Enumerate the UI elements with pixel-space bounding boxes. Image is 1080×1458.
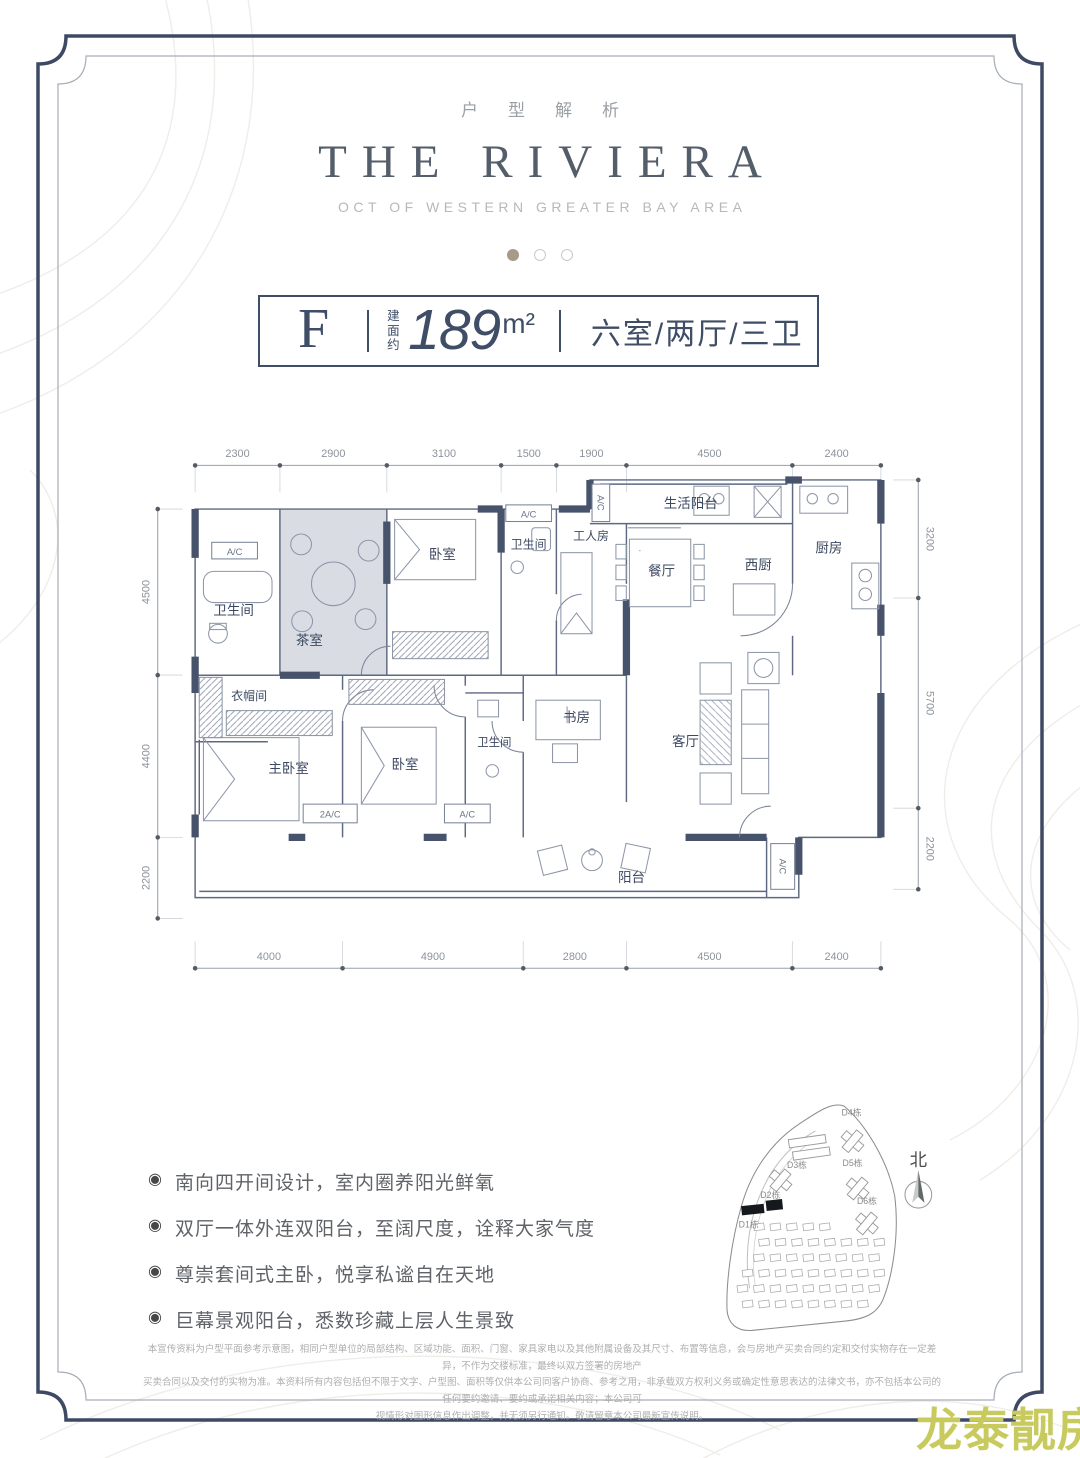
room-label-cloakroom: 衣帽间 (231, 688, 267, 703)
north-label: 北 (910, 1150, 928, 1170)
bullet-icon: ◉ (148, 1306, 163, 1329)
floorplan-svg: 2300 2900 3100 1500 1900 4500 2400 4000 … (112, 428, 964, 1051)
feature-list: ◉南向四开间设计，室内圈养阳光鲜氧 ◉双厅一体外连双阳台，至阔尺度，诠释大家气度… (148, 1168, 595, 1352)
bullet-icon: ◉ (148, 1214, 163, 1237)
page-subtitle: OCT OF WESTERN GREATER BAY AREA (0, 199, 1080, 215)
carousel-dot[interactable] (534, 249, 546, 261)
dim-bottom-3: 4500 (697, 951, 721, 963)
room-label-study: 书房 (563, 710, 590, 725)
site-label-d3: D3栋 (787, 1159, 807, 1170)
disclaimer-line: 买卖合同以及交付的实物为准。本资料所有内容包括但不限于文字、户型图、面积等仅供本… (142, 1375, 942, 1408)
room-label-bedroom-top: 卧室 (429, 546, 456, 562)
carousel-dots (0, 249, 1080, 261)
disclaimer-line: 视情形对图形信息作出调整，并无须另行通知。敬请留意本公司最新宣传说明。 (142, 1409, 942, 1426)
carousel-dot[interactable] (561, 249, 573, 261)
feature-text: 双厅一体外连双阳台，至阔尺度，诠释大家气度 (175, 1214, 595, 1241)
room-label-master: 主卧室 (268, 760, 309, 776)
area-label: 建面约 (387, 309, 402, 352)
dim-top-0: 2300 (225, 448, 249, 460)
dim-left-1: 4400 (140, 744, 152, 768)
dim-top-2: 3100 (432, 448, 456, 460)
room-label-living: 客厅 (672, 733, 699, 749)
unit-type-letter: F (298, 297, 329, 361)
dim-top-4: 1900 (579, 448, 603, 460)
ac-label: A/C (521, 509, 537, 519)
feature-text: 南向四开间设计，室内圈养阳光鲜氧 (175, 1168, 495, 1195)
dim-right-1: 5700 (924, 691, 936, 715)
watermark: 龙泰靓房 (916, 1394, 1080, 1458)
ac-label: A/C (460, 810, 476, 820)
room-label-bath2: 卫生间 (477, 735, 511, 749)
ac-label: A/C (596, 495, 606, 511)
divider (559, 310, 561, 352)
room-label-laundry: 生活阳台 (664, 496, 718, 511)
disclaimer-line: 本宣传资料为户型平面参考示意图，相同户型单位的局部结构、区域功能、面积、门窗、家… (142, 1342, 942, 1375)
tea-room-area (280, 509, 387, 675)
room-label-worker: 工人房 (573, 528, 609, 543)
room-label-bath-top: 卫生间 (213, 603, 254, 618)
dim-left-2: 2200 (140, 866, 152, 890)
dimension-labels: 2300 2900 3100 1500 1900 4500 2400 4000 … (140, 448, 935, 963)
dim-right-2: 2200 (924, 837, 936, 861)
room-label-kitchen: 厨房 (815, 541, 842, 556)
area-value: 189 (408, 297, 500, 363)
site-label-d1: D1栋 (739, 1219, 759, 1230)
feature-text: 巨幕景观阳台，悉数珍藏上层人生景致 (175, 1306, 515, 1333)
dim-bottom-4: 2400 (824, 951, 848, 963)
carousel-dot[interactable] (507, 249, 519, 261)
feature-text: 尊崇套间式主卧，悦享私谧自在天地 (175, 1260, 495, 1287)
divider (367, 310, 369, 352)
ac-label: A/C (227, 547, 243, 557)
dim-right-0: 3200 (924, 527, 936, 551)
page-title: THE RIVIERA (0, 135, 1080, 189)
feature-item: ◉南向四开间设计，室内圈养阳光鲜氧 (148, 1168, 595, 1195)
disclaimer: 本宣传资料为户型平面参考示意图，相同户型单位的局部结构、区域功能、面积、门窗、家… (142, 1342, 942, 1425)
dim-top-6: 2400 (824, 448, 848, 460)
north-compass-icon: 北 (905, 1150, 932, 1208)
site-label-d6: D6栋 (857, 1195, 877, 1206)
unit-spec-box: F 建面约 189 m² 六室/两厅/三卫 (258, 295, 819, 367)
eyebrow-text: 户型解析 (0, 96, 1080, 121)
room-label-tea: 茶室 (296, 632, 323, 648)
bullet-icon: ◉ (148, 1168, 163, 1191)
ac-label: A/C (778, 859, 788, 875)
dim-bottom-1: 4900 (421, 951, 445, 963)
feature-item: ◉巨幕景观阳台，悉数珍藏上层人生景致 (148, 1306, 595, 1333)
dim-bottom-0: 4000 (257, 951, 281, 963)
ac2-label: 2A/C (320, 810, 341, 820)
header: 户型解析 THE RIVIERA OCT OF WESTERN GREATER … (0, 96, 1080, 261)
dim-left-0: 4500 (140, 580, 152, 604)
site-plan: D1栋 D2栋 D3栋 D4栋 D5栋 D6栋 北 (690, 1098, 942, 1345)
room-label-balcony: 阳台 (618, 870, 645, 885)
feature-item: ◉双厅一体外连双阳台，至阔尺度，诠释大家气度 (148, 1214, 595, 1241)
site-label-d4: D4栋 (842, 1106, 862, 1117)
dim-bottom-2: 2800 (563, 951, 587, 963)
dim-top-3: 1500 (517, 448, 541, 460)
site-label-d2: D2栋 (760, 1189, 780, 1200)
room-label-west-kitchen: 西厨 (745, 557, 772, 572)
area-unit: m² (502, 308, 535, 340)
rooms-text: 六室/两厅/三卫 (591, 309, 804, 353)
bullet-icon: ◉ (148, 1260, 163, 1283)
dim-top-5: 4500 (697, 448, 721, 460)
dim-top-1: 2900 (321, 448, 345, 460)
site-label-d5: D5栋 (843, 1157, 863, 1168)
room-label-bath-mid: 卫生间 (511, 538, 547, 552)
room-label-dining: 餐厅 (648, 564, 675, 579)
floorplan: 2300 2900 3100 1500 1900 4500 2400 4000 … (112, 428, 964, 1051)
site-plan-svg: D1栋 D2栋 D3栋 D4栋 D5栋 D6栋 北 (690, 1098, 942, 1345)
flyer-page: 户型解析 THE RIVIERA OCT OF WESTERN GREATER … (0, 0, 1080, 1458)
feature-item: ◉尊崇套间式主卧，悦享私谧自在天地 (148, 1260, 595, 1287)
room-label-bedroom2: 卧室 (392, 756, 419, 772)
